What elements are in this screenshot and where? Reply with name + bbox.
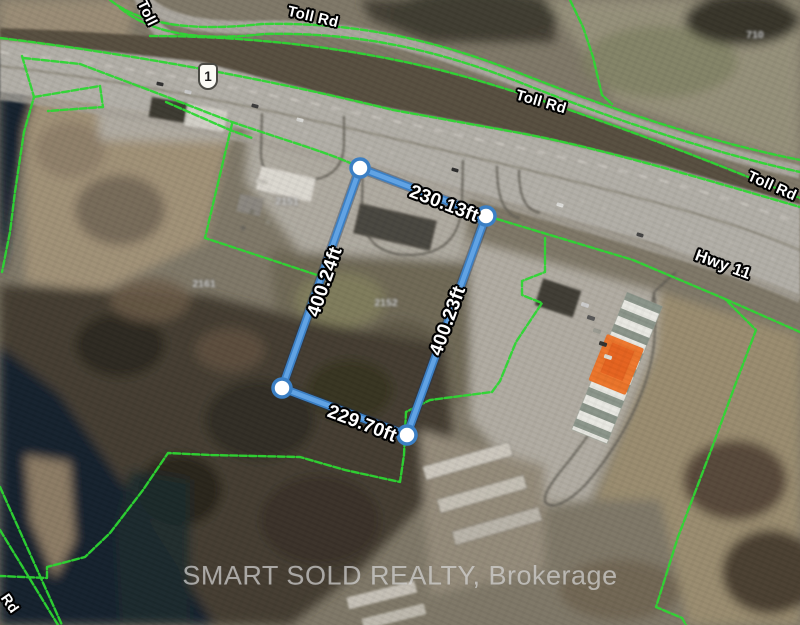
blurred-address-label: 2161 (192, 279, 215, 290)
brokerage-watermark: SMART SOLD REALTY, Brokerage (182, 563, 617, 590)
blurred-address-label: 710 (746, 30, 764, 41)
satellite-map: Toll Rd Toll Rd Toll Rd Toll Hwy 11 Rd 1… (0, 0, 800, 625)
blurred-address-label: 2152 (374, 298, 397, 309)
vertex-handle-top-left (351, 159, 369, 177)
overlay-layer (0, 0, 800, 625)
vertex-handle-bottom-left (273, 379, 291, 397)
route-1-shield: 1 (198, 63, 218, 90)
blurred-address-label: 2151 (275, 196, 299, 207)
vertex-handle-bottom-right (398, 426, 416, 444)
parcel-boundary-lines (0, 0, 800, 625)
